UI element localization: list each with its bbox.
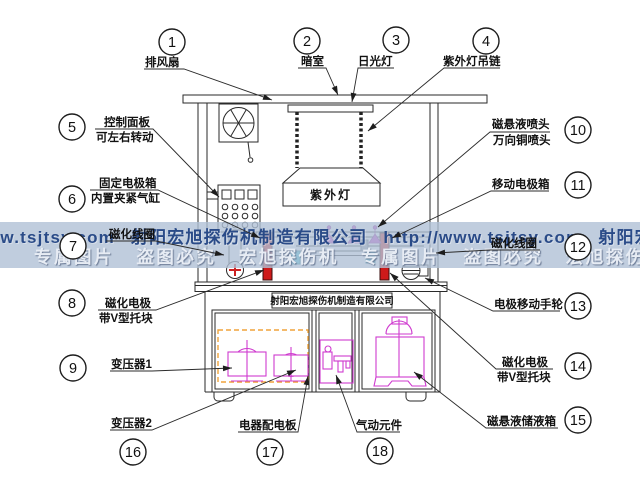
diagram-page: { "watermark": { "line1": "ww.tsjtsy.com… — [0, 0, 640, 480]
uv-lamp-assembly: 紫外灯 — [283, 105, 380, 206]
work-table — [195, 282, 447, 292]
uv-hood — [283, 168, 380, 183]
cabinet-face — [212, 310, 435, 392]
fan-cord-ball — [248, 158, 253, 163]
watermark-band: ww.tsjtsy.com 射阳宏旭探伤机制造有限公司 http://www.t… — [0, 222, 640, 268]
watermark-copyright-line: 专属图片 盗图必究 宏旭探伤机 专属图片 盗图必究 宏旭探伤机 专属图片 — [34, 244, 640, 268]
canopy-plate — [183, 95, 487, 103]
cabinet-foot-right — [406, 392, 426, 401]
nameplate-text: 射阳宏旭探伤机制造有限公司 — [269, 295, 394, 307]
exhaust-fan — [219, 104, 258, 162]
uv-lamp-label: 紫外灯 — [310, 187, 352, 202]
fan-pull-cord — [248, 142, 250, 157]
cabinet-foot-left — [214, 392, 234, 401]
uv-bracket — [288, 105, 373, 112]
